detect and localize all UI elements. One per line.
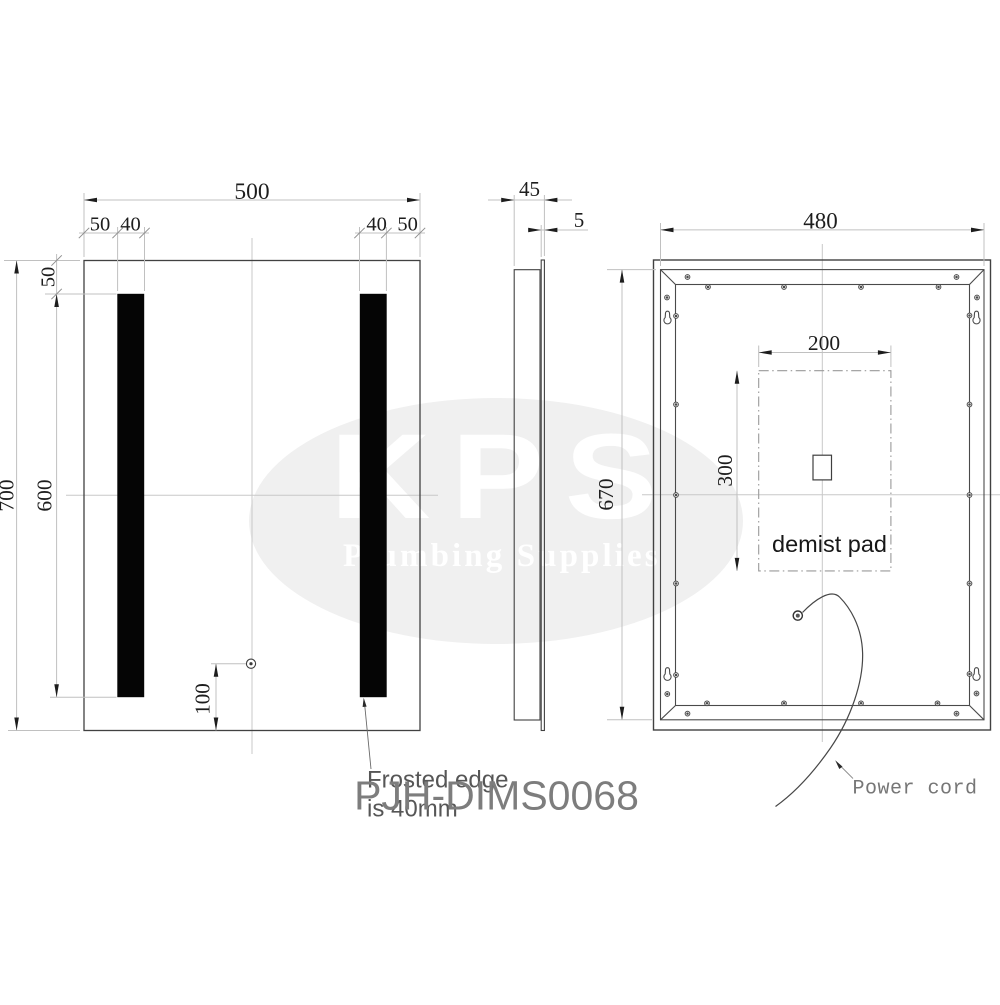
svg-text:5: 5 xyxy=(574,208,585,232)
svg-text:50: 50 xyxy=(90,214,111,236)
svg-text:300: 300 xyxy=(713,454,737,486)
svg-text:50: 50 xyxy=(38,267,60,288)
svg-text:600: 600 xyxy=(33,479,57,511)
svg-text:100: 100 xyxy=(191,683,215,715)
svg-text:50: 50 xyxy=(397,214,418,236)
svg-text:40: 40 xyxy=(120,214,141,236)
svg-text:40: 40 xyxy=(366,214,387,236)
svg-text:demist pad: demist pad xyxy=(772,531,887,557)
svg-text:PJH-DIMS0068: PJH-DIMS0068 xyxy=(354,773,639,819)
svg-text:Power cord: Power cord xyxy=(853,778,978,801)
svg-text:700: 700 xyxy=(0,479,19,511)
svg-text:480: 480 xyxy=(803,209,838,234)
svg-text:500: 500 xyxy=(234,179,269,205)
svg-text:Plumbing Supplies: Plumbing Supplies xyxy=(343,538,661,574)
svg-text:200: 200 xyxy=(808,331,840,355)
svg-text:45: 45 xyxy=(519,177,540,201)
svg-text:670: 670 xyxy=(594,478,618,510)
